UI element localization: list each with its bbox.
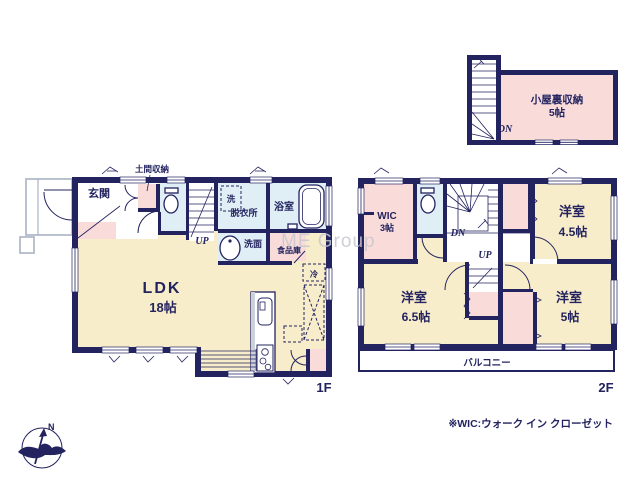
bath-label: 浴室 <box>274 200 294 213</box>
compass-arrowhead <box>39 428 47 437</box>
f2-up-label: UP <box>478 250 492 261</box>
bath-faucet-icon <box>288 224 297 229</box>
kitchen-counter <box>251 292 275 373</box>
attic-stairs-floor <box>472 60 496 140</box>
attic-room-size: 5帖 <box>549 106 566 119</box>
wic-footnote: ※WIC:ウォーク イン クローゼット <box>448 417 613 430</box>
f1-genkan-step <box>78 222 116 239</box>
f2-closet-65 <box>464 292 498 320</box>
washstand-label: 洗面 <box>244 238 262 249</box>
f2-45-door-gap <box>533 259 557 264</box>
f1-up-label: UP <box>195 236 209 247</box>
bedroom5-size: 5帖 <box>561 309 580 324</box>
f2-window-marks <box>374 168 567 174</box>
watermark-text: ME Group <box>281 231 376 252</box>
dressing-label: 脱衣所 <box>230 207 257 218</box>
genkan-label: 玄関 <box>88 186 110 200</box>
balcony-label: バルコニー <box>463 357 510 369</box>
f1-dressing-floor <box>218 183 266 229</box>
ldk-label: LDK <box>143 280 182 297</box>
ldk-size-label: 18帖 <box>149 300 176 315</box>
floorplan-page: 小屋裏収納 5帖 DN <box>0 0 640 480</box>
f2-dn-label: DN <box>450 228 466 239</box>
compass: N <box>18 422 66 468</box>
attic-plan: 小屋裏収納 5帖 DN <box>467 55 618 145</box>
floor2-tag: 2F <box>598 380 613 395</box>
f1-wall-dressing-bath <box>266 183 270 231</box>
f1-staircase <box>189 183 218 241</box>
attic-dn-label: DN <box>497 124 513 135</box>
compass-north-label: N <box>48 422 55 432</box>
f2-closet-5 <box>503 289 541 344</box>
floorplan-canvas: 小屋裏収納 5帖 DN <box>0 0 640 480</box>
toilet-tank-icon <box>165 188 178 193</box>
compass-bird-icon <box>18 444 66 459</box>
porch <box>26 179 72 235</box>
toilet-bowl-icon <box>164 195 178 213</box>
floor2-plan: WIC 3帖 DN UP <box>358 168 617 395</box>
toilet-bowl-icon <box>421 195 435 213</box>
wic-wall-stub <box>364 212 374 215</box>
wic-label: WIC <box>377 211 396 222</box>
fridge-label: 冷 <box>310 269 318 279</box>
washer-label: 洗 <box>227 194 236 204</box>
bedroom65-label: 洋室 <box>401 290 427 305</box>
entry-step <box>20 237 34 253</box>
floor1-plan: UP 洗 脱衣所 浴室 洗面 食品庫 冷 <box>20 164 332 395</box>
bedroom5-label: 洋室 <box>556 290 582 305</box>
doma-label: 土間収納 <box>135 164 169 174</box>
bedroom65-size: 6.5帖 <box>402 309 431 324</box>
f2-wall-below-wic <box>358 259 418 264</box>
bedroom45-size: 4.5帖 <box>559 224 588 239</box>
f2-wall-left-of-45 <box>530 184 535 262</box>
f2-wall-toilet-hall <box>443 184 447 262</box>
attic-room-label: 小屋裏収納 <box>530 93 584 106</box>
f1-wall-washstand-pantry <box>266 233 270 261</box>
toilet-tank-icon <box>421 188 434 193</box>
wic-size-label: 3帖 <box>380 222 394 233</box>
bedroom45-label: 洋室 <box>559 204 585 219</box>
floor1-tag: 1F <box>316 380 331 395</box>
f2-wall-wic-toilet <box>413 184 417 262</box>
f1-wall-below-washstand <box>218 261 292 265</box>
